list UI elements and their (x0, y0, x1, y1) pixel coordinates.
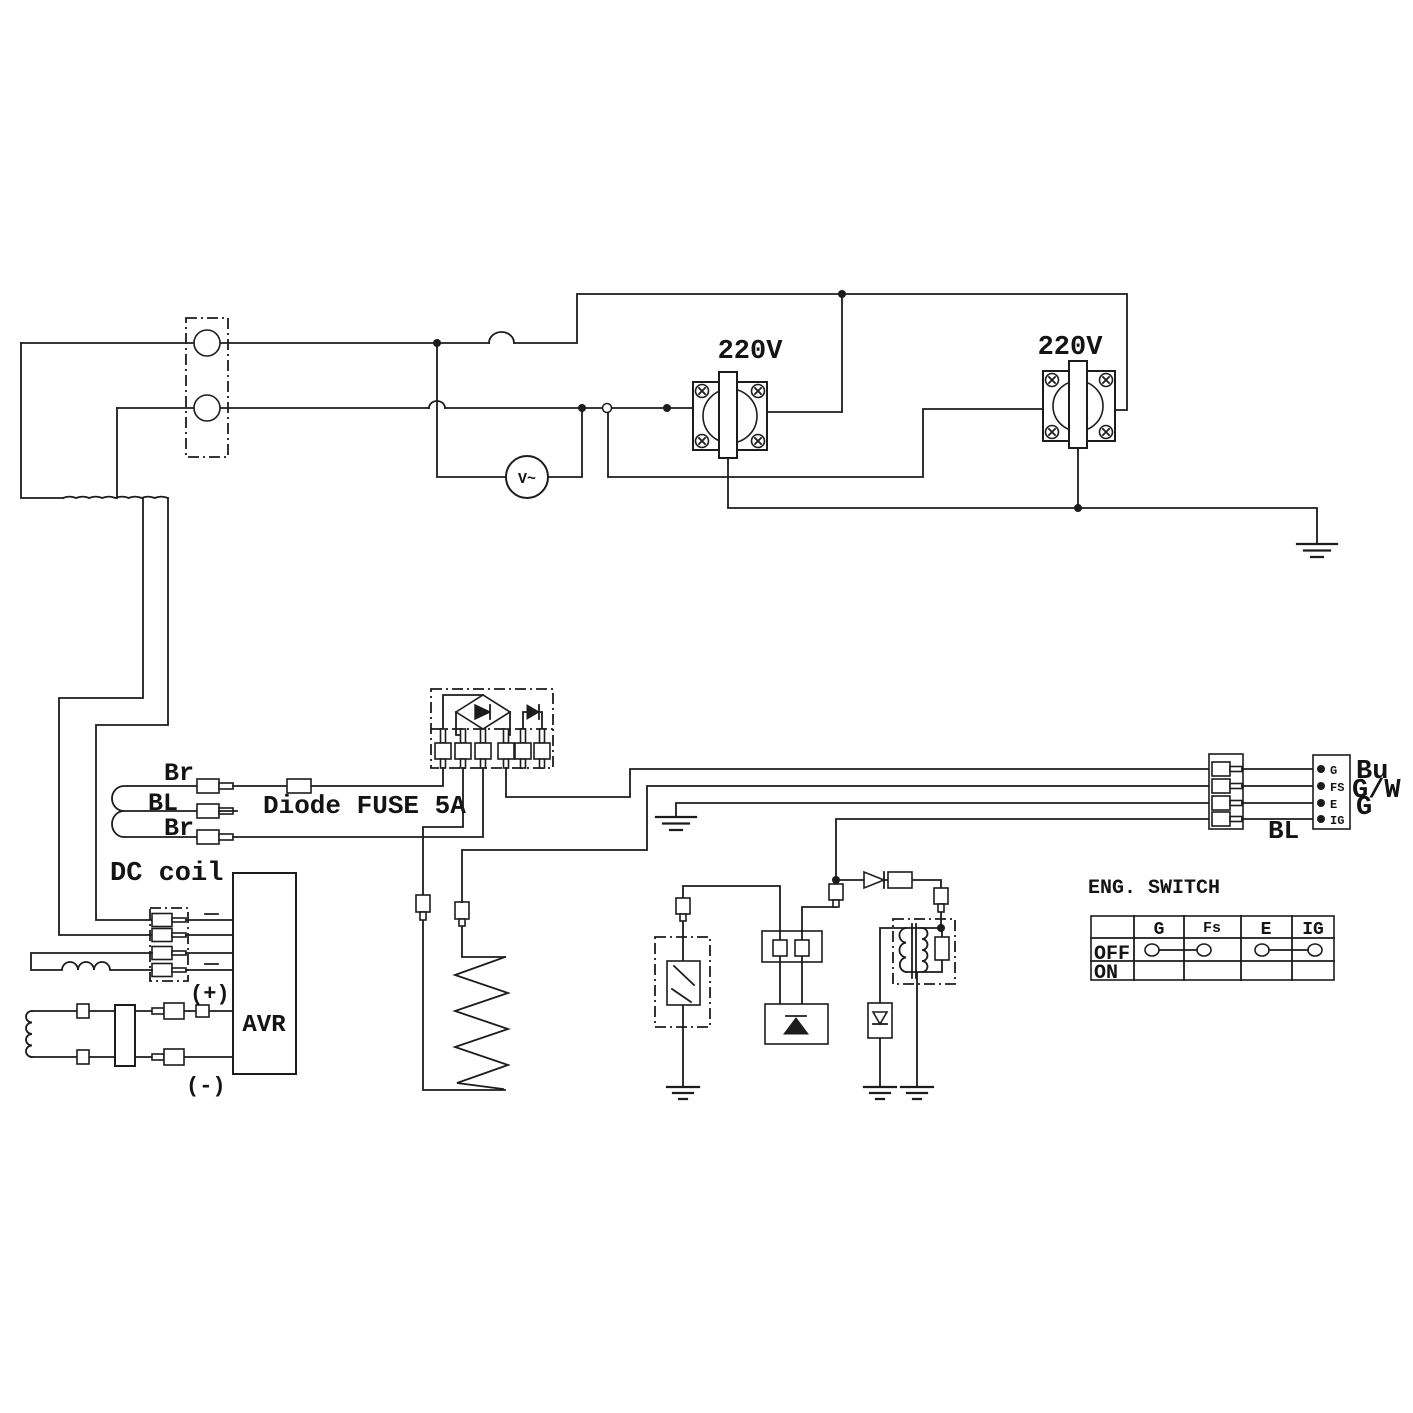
outlet-slot (719, 372, 737, 458)
switch-pin-dot (1317, 799, 1325, 807)
table-col-ig: IG (1302, 920, 1324, 940)
avr-plus-label: (+) (190, 982, 230, 1007)
oil-sensor-body (667, 961, 700, 1005)
junction-dot (937, 924, 945, 932)
junction-dot (578, 404, 586, 412)
screw-icon (1100, 374, 1113, 387)
connector-pin (77, 1050, 89, 1064)
eng-switch-title: ENG. SWITCH (1088, 877, 1220, 900)
junction-dot (663, 404, 671, 412)
outlet-right-label: 220V (1038, 333, 1104, 363)
screw-icon (1100, 426, 1113, 439)
outlet-left-label: 220V (718, 337, 784, 367)
open-junction (603, 404, 612, 413)
fuse-label: Diode FUSE 5A (263, 791, 466, 821)
terminal-circle (194, 395, 220, 421)
wire-label-br-top: Br (164, 759, 194, 788)
avr-minus-label: (-) (186, 1074, 226, 1099)
switch-pin-dot (1317, 765, 1325, 773)
switch-pin-label-fs: FS (1330, 781, 1344, 795)
junction-dot (1074, 504, 1082, 512)
screw-icon (696, 385, 709, 398)
wiring-diagram: V~ 220V 220V (0, 0, 1413, 1413)
screw-icon (752, 385, 765, 398)
table-col-e: E (1261, 920, 1272, 940)
connector-pin (795, 940, 809, 956)
dc-coil-label: DC coil (110, 859, 223, 889)
screw-icon (1046, 374, 1059, 387)
terminal-circle (194, 330, 220, 356)
table-col-g: G (1154, 920, 1165, 940)
resistor-icon (888, 872, 912, 888)
connector-pin (77, 1004, 89, 1018)
switch-pin-dot (1317, 815, 1325, 823)
switch-pin-dot (1317, 782, 1325, 790)
wire-color-g: G (1356, 793, 1372, 823)
avr-label: AVR (242, 1012, 286, 1039)
switch-pin-label-e: E (1330, 798, 1337, 812)
switch-pin-label-g: G (1330, 764, 1337, 778)
diagram-background (0, 0, 1413, 1413)
screw-icon (752, 435, 765, 448)
wire-label-br-bottom: Br (164, 814, 194, 843)
wire-color-bl: BL (1268, 816, 1299, 846)
connector-pin (773, 940, 787, 956)
junction-dot (433, 339, 441, 347)
ignition-connector-block (762, 931, 822, 962)
switch-pin-label-ig: IG (1330, 814, 1344, 828)
brush-holder (115, 1005, 135, 1066)
screw-icon (1046, 426, 1059, 439)
voltmeter-label: V~ (518, 471, 536, 488)
screw-icon (696, 435, 709, 448)
table-col-fs: Fs (1203, 920, 1221, 937)
avr-box (233, 873, 296, 1074)
junction-dot (838, 290, 846, 298)
outlet-slot (1069, 361, 1087, 448)
coil-resistor-icon (935, 937, 949, 960)
voltmeter: V~ (506, 456, 548, 498)
table-row-on: ON (1094, 962, 1118, 985)
